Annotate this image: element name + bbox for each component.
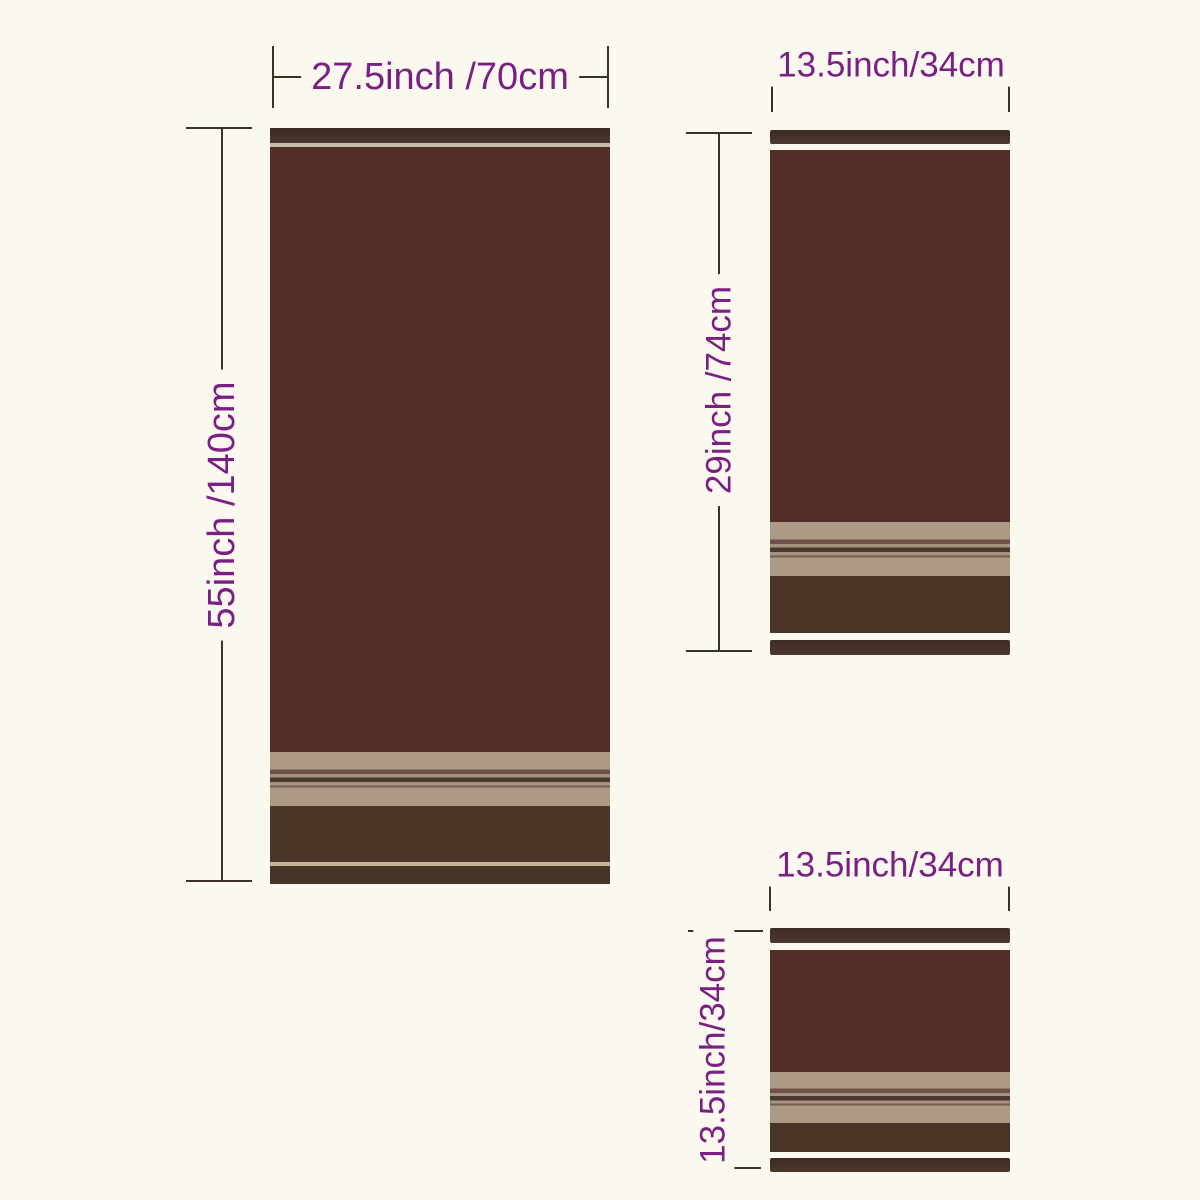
dimension-end-bar bbox=[186, 127, 252, 129]
towel-body bbox=[270, 147, 610, 752]
towel-top-hem bbox=[270, 128, 610, 143]
towel-stripe-band bbox=[770, 522, 1010, 576]
towel-body bbox=[770, 950, 1010, 1072]
dimension-end-tick bbox=[607, 46, 609, 108]
towel-body bbox=[770, 150, 1010, 522]
towel-bottom-hem bbox=[270, 866, 610, 884]
washcloth-width-label: 13.5inch/34cm bbox=[766, 846, 1014, 887]
washcloth-bottom-hem-strip bbox=[770, 1158, 1010, 1172]
hand-towel-bottom-hem-strip bbox=[770, 640, 1010, 655]
washcloth-image bbox=[770, 950, 1010, 1152]
bath-towel-image bbox=[270, 128, 610, 884]
towel-lower-section bbox=[770, 576, 1010, 633]
dimension-end-tick bbox=[272, 46, 274, 108]
washcloth-top-hem-strip bbox=[770, 928, 1010, 943]
towel-lower-section bbox=[270, 806, 610, 862]
dimension-end-bar bbox=[686, 132, 752, 134]
bath-towel-height-label: 55inch /140cm bbox=[201, 369, 245, 640]
towel-stripe-band bbox=[270, 752, 610, 806]
dimension-end-bar bbox=[186, 880, 252, 882]
hand-towel-top-hem-strip bbox=[770, 130, 1010, 144]
washcloth-height-label: 13.5inch/34cm bbox=[694, 924, 735, 1176]
towel-stripe-band bbox=[770, 1072, 1010, 1123]
towel-size-diagram: 27.5inch /70cm 55inch /140cm 13.5inch/34… bbox=[0, 0, 1200, 1200]
dimension-end-bar bbox=[686, 650, 752, 652]
bath-towel-width-label: 27.5inch /70cm bbox=[301, 56, 579, 100]
hand-towel-height-label: 29inch /74cm bbox=[700, 274, 741, 506]
hand-towel-image bbox=[770, 150, 1010, 633]
hand-towel-width-label: 13.5inch/34cm bbox=[767, 46, 1015, 87]
towel-lower-section bbox=[770, 1123, 1010, 1152]
